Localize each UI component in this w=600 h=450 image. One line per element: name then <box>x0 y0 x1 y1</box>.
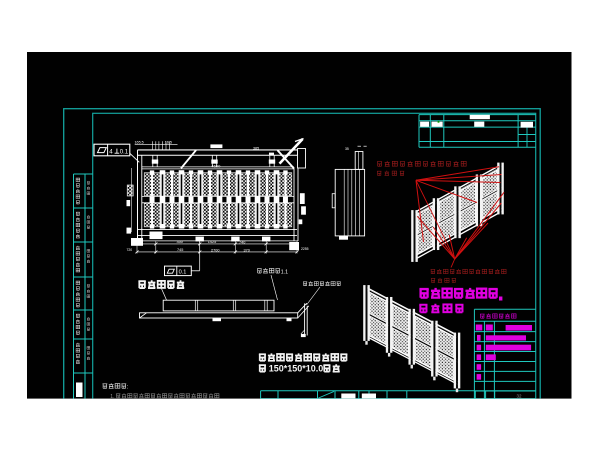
svg-text:0.1: 0.1 <box>179 270 187 276</box>
svg-text:32: 32 <box>517 394 523 399</box>
svg-text:4600: 4600 <box>211 163 221 168</box>
svg-text:745: 745 <box>177 248 183 252</box>
svg-text:1425: 1425 <box>208 240 216 244</box>
svg-text:350: 350 <box>177 240 183 244</box>
svg-text:2700: 2700 <box>211 248 219 252</box>
svg-text:2255: 2255 <box>301 247 309 251</box>
svg-text:720: 720 <box>127 248 133 252</box>
svg-text:150*150*10.0: 150*150*10.0 <box>269 363 324 373</box>
svg-text:0.1: 0.1 <box>120 149 129 155</box>
svg-text:16.5: 16.5 <box>165 141 172 145</box>
svg-text:385: 385 <box>253 147 259 151</box>
svg-text:740: 740 <box>239 241 245 245</box>
svg-text:4: 4 <box>109 148 113 155</box>
svg-text:1.1: 1.1 <box>281 269 288 275</box>
svg-text:370: 370 <box>244 249 250 253</box>
svg-text:35: 35 <box>345 147 349 151</box>
svg-text:165.5: 165.5 <box>135 141 144 145</box>
